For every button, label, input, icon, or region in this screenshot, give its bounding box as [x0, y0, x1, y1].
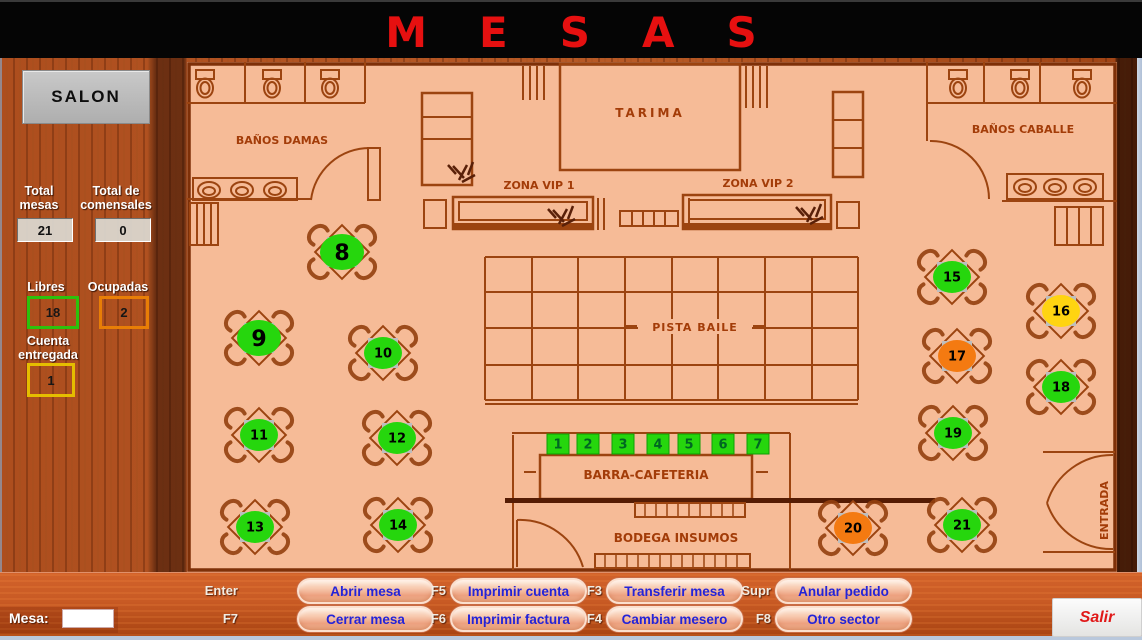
- svg-text:13: 13: [246, 521, 264, 536]
- window-left-edge: [0, 58, 2, 640]
- svg-text:3: 3: [618, 438, 627, 453]
- total-comensales-value: 0: [95, 218, 151, 242]
- otro-sector-button[interactable]: Otro sector: [775, 606, 912, 632]
- imprimir-cuenta-key-label: F5: [408, 583, 446, 598]
- floor-plan: BAÑOS DAMAS TARIMA ZONA VIP 1 ZONA VIP 2…: [187, 62, 1117, 572]
- salir-button[interactable]: Salir: [1052, 598, 1142, 637]
- svg-text:2: 2: [583, 438, 592, 453]
- barra-seat-6[interactable]: 6: [712, 434, 734, 454]
- abrir-mesa-key-label: Enter: [186, 583, 238, 598]
- svg-text:6: 6: [718, 438, 727, 453]
- salon-button[interactable]: SALON: [22, 70, 150, 124]
- cerrar-mesa-key-label: F7: [186, 611, 238, 626]
- svg-text:7: 7: [753, 438, 762, 453]
- barra-seat-7[interactable]: 7: [747, 434, 769, 454]
- total-comensales-label: Total de comensales: [80, 184, 152, 213]
- mesa-label: Mesa:: [9, 610, 49, 626]
- barra-seat-3[interactable]: 3: [612, 434, 634, 454]
- tarima-label: TARIMA: [615, 106, 684, 120]
- svg-text:15: 15: [943, 271, 961, 286]
- scrollbar-strip[interactable]: [1137, 58, 1142, 640]
- zona-vip-2-label: ZONA VIP 2: [722, 177, 793, 190]
- mesas-app: MESAS SALON Total mesas Total de comensa…: [0, 0, 1142, 640]
- title-bar: MESAS: [0, 0, 1142, 58]
- barra-seat-4[interactable]: 4: [647, 434, 669, 454]
- banos-caballe-label: BAÑOS CABALLE: [972, 123, 1074, 136]
- svg-text:11: 11: [250, 429, 268, 444]
- libres-label: Libres: [14, 280, 78, 294]
- svg-text:8: 8: [334, 241, 349, 266]
- svg-text:4: 4: [653, 438, 662, 453]
- imprimir-factura-key-label: F6: [408, 611, 446, 626]
- banos-damas-label: BAÑOS DAMAS: [236, 134, 328, 147]
- svg-text:1: 1: [553, 438, 562, 453]
- svg-text:20: 20: [844, 522, 862, 537]
- svg-text:19: 19: [944, 427, 962, 442]
- mesa-input[interactable]: [62, 609, 114, 628]
- svg-text:17: 17: [948, 350, 966, 365]
- total-mesas-value: 21: [17, 218, 73, 242]
- anular-pedido-button[interactable]: Anular pedido: [775, 578, 912, 604]
- entrada-label: ENTRADA: [1098, 481, 1111, 540]
- page-title: MESAS: [0, 8, 1142, 57]
- window-bottom-edge: [0, 636, 1142, 640]
- transferir-mesa-key-label: F3: [564, 583, 602, 598]
- pista-baile-label: PISTA BAILE: [652, 321, 738, 334]
- svg-text:14: 14: [389, 519, 407, 534]
- svg-text:21: 21: [953, 519, 971, 534]
- cuenta-entregada-count: 1: [27, 363, 75, 397]
- barra-seat-2[interactable]: 2: [577, 434, 599, 454]
- total-mesas-label: Total mesas: [6, 184, 72, 213]
- cambiar-mesero-key-label: F4: [564, 611, 602, 626]
- cuenta-entregada-label: Cuenta entregada: [10, 334, 86, 363]
- ocupadas-count: 2: [99, 296, 149, 329]
- svg-text:18: 18: [1052, 381, 1070, 396]
- svg-text:12: 12: [388, 432, 406, 447]
- svg-text:10: 10: [374, 347, 392, 362]
- svg-text:5: 5: [684, 438, 693, 453]
- bodega-insumos-label: BODEGA INSUMOS: [614, 531, 739, 545]
- barra-seat-5[interactable]: 5: [678, 434, 700, 454]
- svg-text:16: 16: [1052, 305, 1070, 320]
- anular-pedido-key-label: Supr: [723, 583, 771, 598]
- ocupadas-label: Ocupadas: [84, 280, 152, 294]
- barra-cafeteria-label: BARRA-CAFETERIA: [583, 468, 709, 482]
- otro-sector-key-label: F8: [723, 611, 771, 626]
- libres-count: 18: [27, 296, 79, 329]
- svg-text:9: 9: [251, 327, 266, 352]
- zona-vip-1-label: ZONA VIP 1: [503, 179, 574, 192]
- barra-seat-1[interactable]: 1: [547, 434, 569, 454]
